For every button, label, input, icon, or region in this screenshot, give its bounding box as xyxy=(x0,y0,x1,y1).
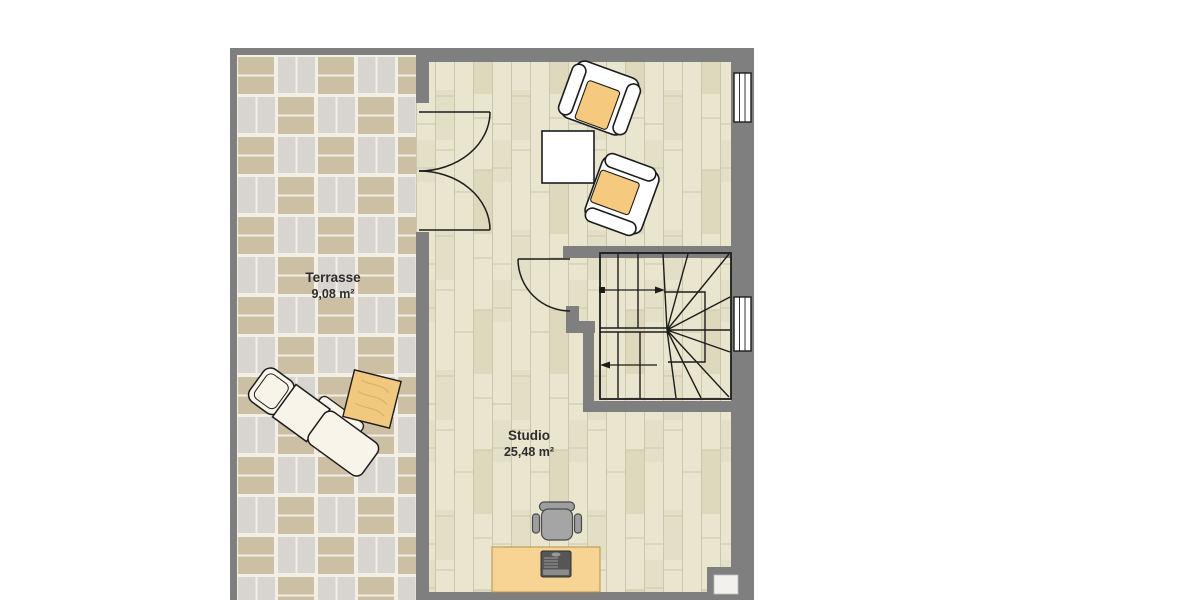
floor-plan-canvas: Terrasse 9,08 m² Studio 25,48 m² xyxy=(0,0,1200,600)
laptop-icon xyxy=(541,551,571,577)
window-icon-top xyxy=(734,73,751,122)
wall-studio-top xyxy=(416,48,754,62)
wall-stair-south xyxy=(583,401,731,412)
wall-stair-north xyxy=(563,246,731,258)
side-table-icon xyxy=(343,370,401,428)
wall-studio-west-upper xyxy=(416,62,429,103)
wall-terrace-left xyxy=(230,48,237,600)
wall-terrace-top xyxy=(230,48,416,55)
wall-studio-bottom xyxy=(416,592,754,600)
room-area-studio: 25,48 m² xyxy=(504,445,554,459)
wall-stair-west xyxy=(583,321,594,412)
room-area-terrasse: 9,08 m² xyxy=(311,287,354,301)
terrace-floor xyxy=(237,55,416,600)
room-label-terrasse: Terrasse xyxy=(305,270,361,285)
floor-plan-page: Terrasse 9,08 m² Studio 25,48 m² xyxy=(0,0,1200,600)
coffee-table-icon xyxy=(542,131,594,183)
wall-studio-west-lower xyxy=(416,232,429,600)
window-icon-middle xyxy=(734,297,751,351)
corner-shaft-inset xyxy=(714,575,738,594)
room-label-studio: Studio xyxy=(508,428,550,443)
